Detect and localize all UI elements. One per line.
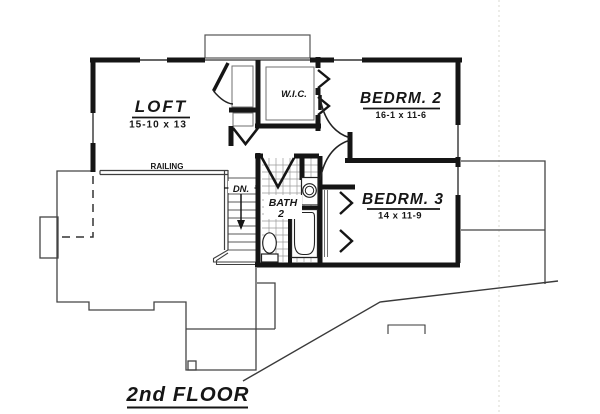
bedrm2-dimensions: 16-1 x 11-6 xyxy=(375,110,426,120)
wic-label: W.I.C. xyxy=(281,89,307,100)
loft-label: LOFT xyxy=(135,97,187,116)
bedrm3-label: BEDRM. 3 xyxy=(362,191,444,208)
floorplan-svg: LOFT 15-10 x 13 W.I.C. BEDRM. 2 16-1 x 1… xyxy=(0,0,600,414)
floor-title: 2nd FLOOR xyxy=(126,383,250,406)
sink xyxy=(303,184,317,198)
toilet-tank xyxy=(262,254,279,262)
bath-number: 2 xyxy=(277,208,284,220)
toilet xyxy=(263,233,277,253)
railing-label: RAILING xyxy=(151,162,184,171)
bedrm3-dimensions: 14 x 11-9 xyxy=(378,211,422,222)
floorplan-sheet: LOFT 15-10 x 13 W.I.C. BEDRM. 2 16-1 x 1… xyxy=(0,0,600,414)
loft-dimensions: 15-10 x 13 xyxy=(129,120,187,131)
chimney xyxy=(40,217,58,258)
bedrm2-label: BEDRM. 2 xyxy=(360,90,442,107)
dn-label: DN. xyxy=(233,184,249,195)
